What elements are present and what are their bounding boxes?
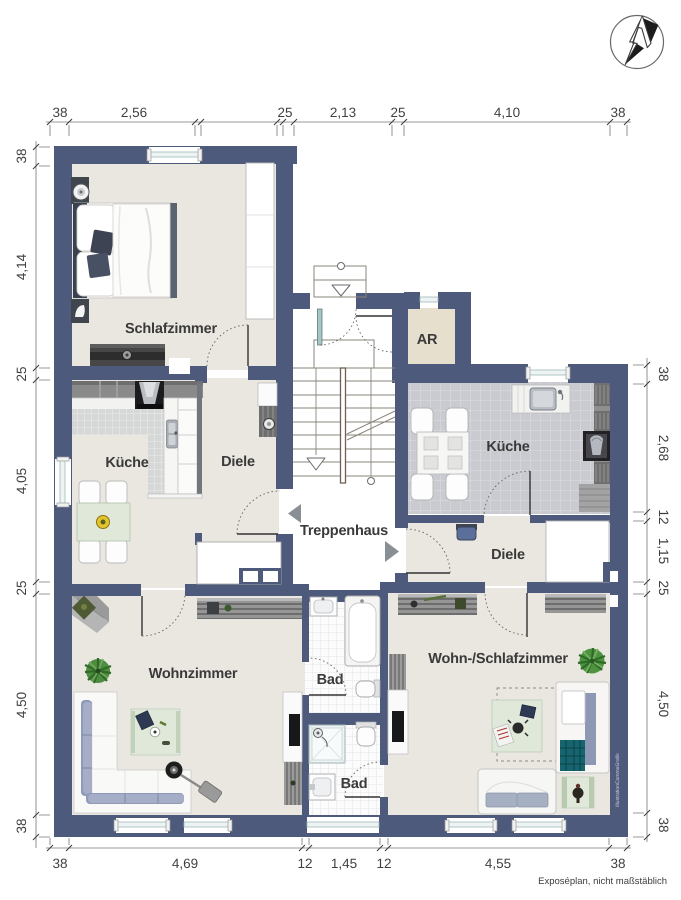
svg-text:38: 38 xyxy=(52,856,67,871)
svg-text:Bad: Bad xyxy=(341,776,368,792)
svg-text:4,14: 4,14 xyxy=(14,253,29,280)
svg-text:2,13: 2,13 xyxy=(330,105,356,120)
svg-text:38: 38 xyxy=(52,105,67,120)
svg-text:4,55: 4,55 xyxy=(485,856,511,871)
svg-text:4,05: 4,05 xyxy=(14,468,29,494)
svg-text:Küche: Küche xyxy=(105,455,148,471)
svg-text:4,50: 4,50 xyxy=(656,691,671,717)
svg-text:4,10: 4,10 xyxy=(494,105,520,120)
svg-text:Wohn-/Schlafzimmer: Wohn-/Schlafzimmer xyxy=(428,651,568,667)
svg-text:38: 38 xyxy=(14,148,29,163)
svg-text:1,15: 1,15 xyxy=(656,538,671,564)
svg-text:25: 25 xyxy=(277,105,292,120)
svg-text:25: 25 xyxy=(656,580,671,595)
svg-text:38: 38 xyxy=(610,856,625,871)
svg-text:Küche: Küche xyxy=(486,439,529,455)
svg-text:12: 12 xyxy=(656,509,671,524)
svg-text:38: 38 xyxy=(14,818,29,833)
svg-text:12: 12 xyxy=(376,856,391,871)
svg-text:Diele: Diele xyxy=(221,454,255,470)
svg-text:38: 38 xyxy=(656,817,671,832)
svg-text:IllustrationCommoGrafik: IllustrationCommoGrafik xyxy=(615,753,621,807)
svg-text:25: 25 xyxy=(14,580,29,595)
svg-text:Exposéplan, nicht maßstäblich: Exposéplan, nicht maßstäblich xyxy=(538,876,667,887)
svg-text:38: 38 xyxy=(656,366,671,381)
svg-text:AR: AR xyxy=(417,332,438,348)
svg-text:4,69: 4,69 xyxy=(172,856,198,871)
svg-text:1,45: 1,45 xyxy=(331,856,357,871)
svg-text:25: 25 xyxy=(390,105,405,120)
svg-text:Diele: Diele xyxy=(491,547,525,563)
svg-text:2,68: 2,68 xyxy=(656,435,671,461)
svg-text:2,56: 2,56 xyxy=(121,105,147,120)
svg-text:Schlafzimmer: Schlafzimmer xyxy=(125,321,217,337)
svg-text:4,50: 4,50 xyxy=(14,692,29,718)
svg-text:Wohnzimmer: Wohnzimmer xyxy=(149,666,238,682)
svg-text:25: 25 xyxy=(14,366,29,381)
svg-text:Treppenhaus: Treppenhaus xyxy=(300,523,388,539)
svg-text:38: 38 xyxy=(610,105,625,120)
svg-text:12: 12 xyxy=(297,856,312,871)
